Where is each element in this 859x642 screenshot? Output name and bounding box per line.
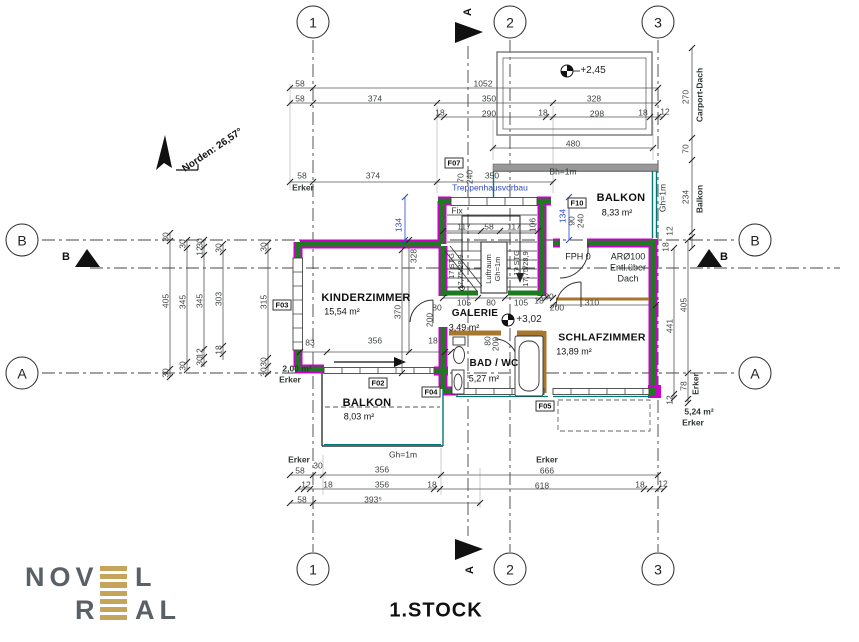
- dimension-label: 30: [179, 361, 188, 370]
- dimension-label: 18: [534, 297, 543, 306]
- dimension-label: 310: [585, 299, 599, 308]
- dimension-label: 18: [427, 481, 436, 490]
- dimension-label: 30: [313, 462, 322, 471]
- dimension-label: 58: [297, 496, 306, 505]
- note-ar: ARØ100: [611, 252, 646, 261]
- dimension-label: 480: [566, 140, 580, 149]
- dimension-label: 12: [301, 481, 310, 490]
- dimension-label: 106: [529, 218, 538, 232]
- elevation-carport: +2,45: [580, 66, 605, 77]
- room-label-schlafzimmer: SCHLAFZIMMER: [558, 332, 646, 343]
- dimension-label: 618: [535, 482, 549, 491]
- dimension-label: 328: [410, 249, 419, 263]
- note-stg-right-detail: 17,75/28,9: [522, 251, 530, 286]
- note-gh-balkon-nord: Gh=1m: [659, 184, 668, 212]
- logo-text-r: R: [75, 595, 100, 626]
- dimension-label: 270: [682, 90, 691, 104]
- note-stg-left-detail: 17,75/28,9: [457, 254, 465, 289]
- dimension-label: Carport-Dach: [696, 68, 705, 122]
- dimension-label: 441: [666, 319, 675, 333]
- dimension-label: 117: [457, 223, 471, 232]
- dimension-label: 12: [666, 395, 675, 404]
- dimension-label: 58: [484, 223, 493, 232]
- plan-title: 1.STOCK: [389, 601, 482, 622]
- room-area-kinderzimmer: 15,54 m²: [324, 307, 360, 316]
- room-area-galerie: 3,49 m²: [449, 323, 480, 332]
- note-ar-entl: Entl.über: [610, 263, 646, 272]
- window-tag-f05: F05: [536, 401, 555, 412]
- elevation-symbol-galerie: [502, 314, 514, 326]
- room-label-kinderzimmer: KINDERZIMMER: [321, 293, 410, 305]
- dimension-label: 350: [482, 95, 496, 104]
- window-tag-f10: F10: [568, 198, 587, 209]
- dimension-label: Erker: [292, 184, 314, 193]
- dimension-label: 58: [295, 467, 304, 476]
- dimension-label: 30: [260, 242, 269, 251]
- room-label-balkon-nord: BALKON: [597, 193, 646, 205]
- dimension-label: 18: [635, 481, 644, 490]
- room-area-bad: 5,27 m²: [469, 374, 500, 383]
- axis-bubble-top-2: 2: [494, 6, 527, 39]
- novel-real-logo: NOV L R AL: [25, 562, 205, 634]
- note-treppenhausvorbau: Treppenhausvorbau: [452, 184, 528, 193]
- dimension-label: 18: [215, 345, 224, 354]
- axis-bubble-top-3: 3: [642, 6, 675, 39]
- dimension-label: 303: [215, 292, 224, 306]
- axis-bubble-bottom-1: 1: [297, 553, 330, 586]
- section-label-b-right: B: [720, 252, 728, 264]
- dimension-label: 18: [662, 242, 671, 251]
- elevation-symbol-carport: [561, 65, 580, 77]
- erker-west-label: Erker: [279, 376, 301, 385]
- elevation-galerie: +3,02: [516, 315, 541, 326]
- dimension-label: 345: [196, 294, 205, 308]
- dimension-label: Erker: [536, 456, 558, 465]
- dimension-label: 30: [162, 368, 171, 377]
- dimension-label: 298: [590, 110, 604, 119]
- dimension-label: 30: [260, 367, 269, 376]
- dimension-label: 12: [666, 226, 675, 235]
- dimension-label: 12: [660, 108, 669, 117]
- logo-text-al: AL: [135, 595, 181, 626]
- dimension-label: Erker: [692, 373, 701, 395]
- dimension-label: 78: [680, 381, 689, 390]
- axis-bubble-right-a: A: [739, 357, 772, 390]
- dimension-label: 12: [658, 480, 667, 489]
- dimension-label: 200: [426, 313, 435, 327]
- room-label-bad: BAD / WC: [469, 359, 518, 370]
- note-fph: FPH 0: [565, 252, 591, 261]
- dimension-label: 70: [682, 144, 691, 153]
- section-label-a-top: A: [463, 8, 475, 16]
- dimension-label: 405: [680, 298, 689, 312]
- dimension-label: 58: [297, 172, 306, 181]
- axis-bubble-bottom-3: 3: [642, 553, 675, 586]
- dimension-label: 315: [260, 295, 269, 309]
- axis-bubble-right-b: B: [739, 224, 772, 257]
- room-area-balkon-sued: 8,03 m²: [344, 412, 375, 421]
- floorplan-canvas: 5810525837435032818290182981812480583743…: [0, 0, 859, 642]
- dimension-label: 370: [394, 305, 403, 319]
- dimension-label: 374: [368, 95, 382, 104]
- dimension-label: 18: [435, 109, 444, 118]
- dimension-label: 117: [507, 223, 521, 232]
- dimension-label: 80: [544, 293, 553, 302]
- logo-text-nov: NOV: [25, 562, 99, 593]
- dimension-label: 134: [395, 218, 404, 232]
- room-area-schlafzimmer: 13,89 m²: [556, 347, 592, 356]
- room-label-balkon-sued: BALKON: [343, 398, 392, 410]
- dimension-label: Erker: [288, 456, 310, 465]
- dimension-label: 30: [196, 356, 205, 365]
- dimension-label: Balkon: [696, 185, 705, 213]
- erker-west-area: 2,00 m²: [282, 365, 311, 374]
- dimension-label: 356: [375, 481, 389, 490]
- dimension-label: 18: [323, 481, 332, 490]
- dimension-label: 356: [375, 466, 389, 475]
- balcony-exit-arrow: [334, 357, 406, 367]
- carport-roof: [497, 52, 652, 135]
- dimension-label: 12: [196, 246, 205, 255]
- dimension-label: 290: [482, 110, 496, 119]
- window-tag-f07: F07: [445, 158, 464, 169]
- dimension-label: 58: [295, 80, 304, 89]
- dimension-lines: [167, 45, 695, 506]
- axis-bubble-top-1: 1: [297, 6, 330, 39]
- logo-text-l: L: [135, 562, 157, 593]
- note-stg-left: 17 STG: [448, 253, 456, 279]
- section-label-b-left: B: [62, 252, 70, 264]
- dimension-label: 350: [485, 172, 499, 181]
- dimension-label: 30: [260, 357, 269, 366]
- window-tag-f02: F02: [369, 378, 388, 389]
- dimension-label: 200: [550, 304, 564, 313]
- axis-bubble-left-a: A: [6, 357, 39, 390]
- dimension-label: 105: [457, 299, 471, 308]
- dimension-label: 83: [305, 339, 314, 348]
- dimension-label: 18: [428, 337, 437, 346]
- dimension-label: 105: [514, 299, 528, 308]
- note-gh-balkon-sued: Gh=1m: [389, 451, 417, 460]
- window-tag-f04: F04: [422, 387, 441, 398]
- note-luftraum: Luftraum: [485, 254, 493, 284]
- erker-ost-label: Erker: [682, 419, 704, 428]
- dimension-label: 345: [179, 295, 188, 309]
- dimension-label: 18: [638, 109, 647, 118]
- room-label-galerie: GALERIE: [452, 309, 499, 320]
- dimension-label: 58: [295, 95, 304, 104]
- dimension-label: 666: [540, 467, 554, 476]
- dimension-label: 356: [368, 337, 382, 346]
- dimension-label: 405: [162, 294, 171, 308]
- axis-bubble-left-b: B: [6, 224, 39, 257]
- note-luftraum-gh: Gh=1m: [494, 257, 502, 282]
- note-bh: Bh=1m: [549, 168, 576, 177]
- dimension-label: 234: [682, 190, 691, 204]
- note-ar-dach: Dach: [617, 274, 638, 283]
- dimension-label: 240: [577, 214, 586, 228]
- room-area-balkon-nord: 8,33 m²: [602, 208, 633, 217]
- note-fix-window: Fix: [451, 207, 462, 216]
- dimension-label: 30: [162, 232, 171, 241]
- dimension-label: 328: [587, 95, 601, 104]
- dimension-label: 200: [492, 337, 501, 351]
- erker-dashed-outline: [558, 400, 650, 431]
- dimension-label: 80: [486, 299, 495, 308]
- erker-ost-area: 5,24 m²: [684, 408, 713, 417]
- window-tag-f03: F03: [273, 300, 292, 311]
- dimension-label: 30: [179, 239, 188, 248]
- logo-gold-bars-icon: [100, 566, 127, 620]
- dimension-label: 18: [538, 109, 547, 118]
- note-stg-right: 17 STG: [513, 250, 521, 276]
- dimension-label: 80: [432, 304, 441, 313]
- section-label-a-bottom: A: [465, 566, 477, 574]
- dimension-label: 1052: [474, 80, 493, 89]
- dimension-label: 374: [366, 172, 380, 181]
- dimension-label: 30: [215, 243, 224, 252]
- axis-bubble-bottom-2: 2: [494, 553, 527, 586]
- dimension-label: 393⁵: [364, 496, 382, 505]
